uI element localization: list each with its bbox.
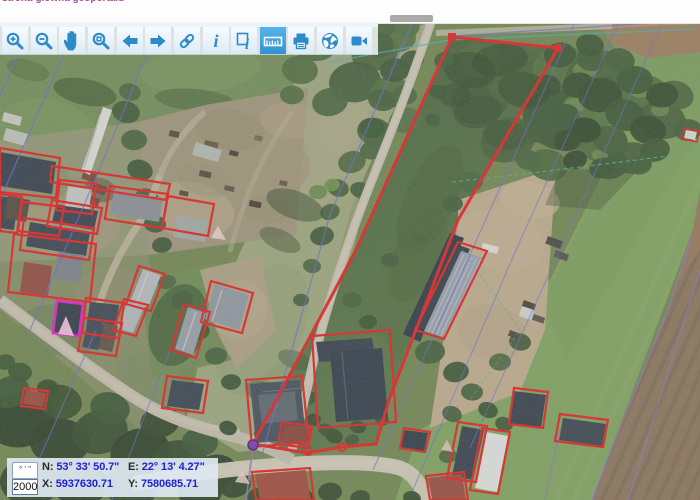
svg-text:i: i <box>245 37 250 51</box>
svg-text:i: i <box>213 31 218 51</box>
